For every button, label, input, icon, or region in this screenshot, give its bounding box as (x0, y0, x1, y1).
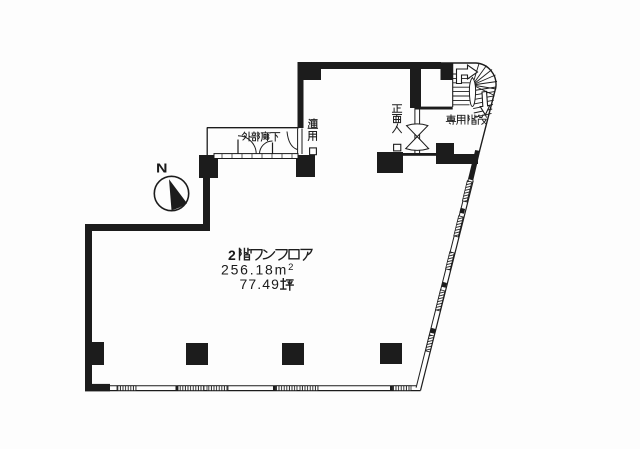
svg-text:N: N (156, 162, 168, 176)
svg-text:256.18m2: 256.18m2 (221, 261, 295, 277)
svg-text:77.49: 77.49 (240, 276, 281, 292)
